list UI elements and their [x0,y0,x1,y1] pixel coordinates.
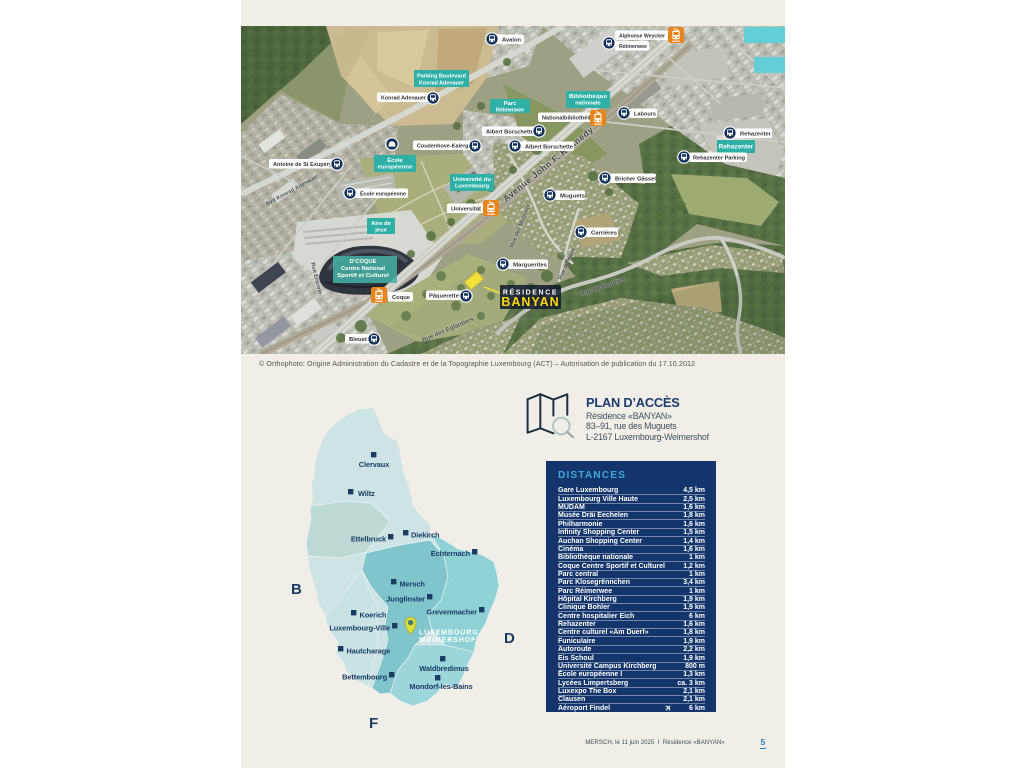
svg-text:Nationalbibliothéik: Nationalbibliothéik [542,116,593,122]
svg-text:Luxembourg: Luxembourg [455,184,489,190]
svg-text:D’COQUE: D’COQUE [349,259,376,265]
svg-text:Rehazenter Parking: Rehazenter Parking [693,156,745,162]
svg-text:Ettelbruck: Ettelbruck [351,535,387,544]
svg-text:Junglinster: Junglinster [386,595,425,604]
svg-text:Réimerwee: Réimerwee [496,108,525,114]
svg-text:Konrad Adenauer: Konrad Adenauer [381,96,427,102]
svg-text:Labours: Labours [634,112,657,118]
svg-text:Pâquerettes: Pâquerettes [429,294,463,300]
svg-text:Albert Borschette: Albert Borschette [525,145,574,151]
svg-text:Rehazenter: Rehazenter [719,144,754,151]
svg-text:Aire de: Aire de [371,221,391,227]
svg-text:Hautcharage: Hautcharage [347,647,391,656]
svg-text:Luxembourg-Ville: Luxembourg-Ville [329,624,390,633]
svg-text:BANYAN: BANYAN [501,295,559,309]
svg-text:Clervaux: Clervaux [359,460,390,469]
svg-text:Waldbredimus: Waldbredimus [419,664,468,673]
svg-text:Diekirch: Diekirch [411,531,440,540]
svg-text:Bibliothèque: Bibliothèque [569,94,608,100]
svg-text:Echternach: Echternach [431,549,471,558]
svg-text:Mondorf-les-Bains: Mondorf-les-Bains [409,682,472,691]
svg-text:Grevenmacher: Grevenmacher [426,608,477,617]
svg-text:européenne: européenne [378,165,414,171]
svg-text:Réimerwee: Réimerwee [619,44,648,50]
svg-text:École: École [387,156,403,164]
svg-text:Bricher Gässel: Bricher Gässel [615,177,656,183]
svg-text:Universität: Universität [451,207,481,213]
svg-text:Coudenhove-Kalergi: Coudenhove-Kalergi [417,144,470,150]
svg-text:Alphonse Weycker: Alphonse Weycker [619,34,666,40]
svg-text:Muguets: Muguets [560,194,586,200]
svg-text:Rehazenter: Rehazenter [740,132,772,138]
svg-text:École européenne: École européenne [360,190,407,198]
svg-text:B: B [291,581,302,598]
svg-text:WEIMERSHOF: WEIMERSHOF [419,637,476,644]
svg-text:Avalon: Avalon [502,38,521,44]
svg-text:Marguerites: Marguerites [513,263,548,269]
svg-text:LUXEMBOURG: LUXEMBOURG [419,630,479,637]
svg-text:Carrières: Carrières [591,231,618,237]
svg-text:Centre National: Centre National [341,266,385,272]
svg-text:Mersch: Mersch [400,580,426,589]
svg-text:Antoine de St Exupéry: Antoine de St Exupéry [273,162,333,168]
svg-text:Bettembourg: Bettembourg [342,673,387,682]
svg-text:D: D [504,630,515,647]
svg-text:F: F [369,715,378,732]
svg-text:Konrad Adenauer: Konrad Adenauer [419,81,465,87]
svg-text:Parc: Parc [504,101,517,107]
svg-text:Sportif et Culturel: Sportif et Culturel [337,273,389,279]
svg-text:jeux: jeux [374,228,387,234]
svg-text:Koerich: Koerich [360,611,387,620]
svg-text:nationale: nationale [575,101,601,107]
svg-text:Coque: Coque [392,295,411,301]
svg-text:Wiltz: Wiltz [358,489,375,498]
svg-text:Université du: Université du [453,177,491,183]
svg-text:Albert Borschette: Albert Borschette [486,130,535,136]
svg-text:Parking Boulevard: Parking Boulevard [417,74,466,80]
